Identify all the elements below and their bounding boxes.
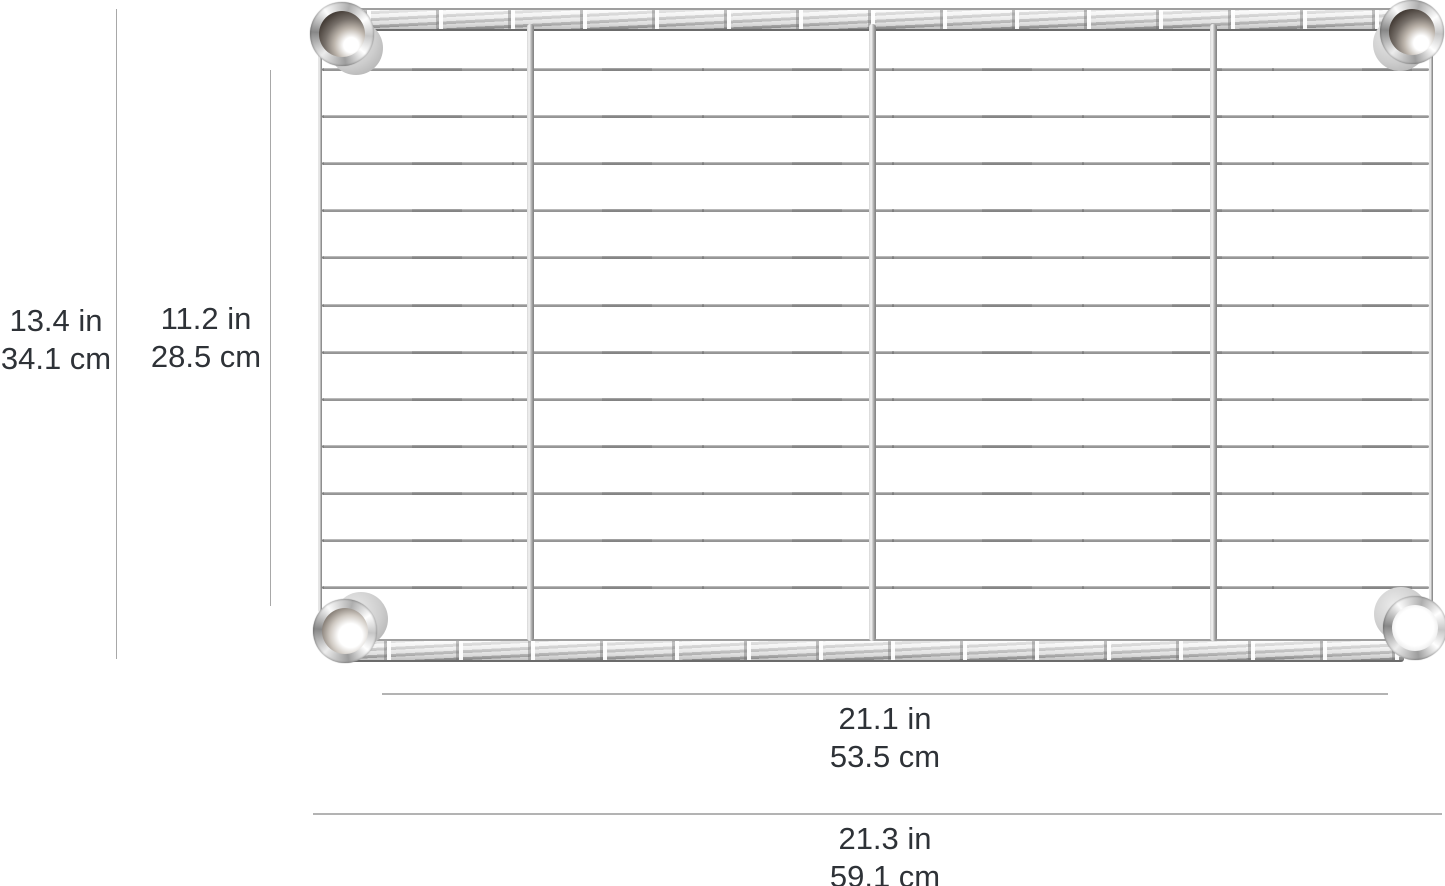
shelf-wire-row [322, 445, 1429, 448]
dimension-line-width-overall [313, 813, 1442, 815]
shelf-wire-row [322, 162, 1429, 165]
dimension-value-centimeters: 28.5 cm [146, 338, 266, 376]
dimension-label-depth-overall: 13.4 in 34.1 cm [0, 302, 116, 378]
collar-hole [319, 11, 365, 57]
dimension-value-inches: 21.1 in [825, 700, 945, 738]
collar-hole [1389, 9, 1435, 55]
shelf-wire-row [322, 398, 1429, 401]
dimension-value-inches: 21.3 in [825, 820, 945, 858]
shelf-wire-row [322, 539, 1429, 542]
collar-hole [322, 608, 368, 654]
post-collar-top-right [1380, 0, 1444, 64]
shelf-wire-row [322, 304, 1429, 307]
dimension-value-centimeters: 59.1 cm [825, 858, 945, 886]
wire-shelf-illustration [310, 2, 1445, 664]
shelf-wire-row [322, 351, 1429, 354]
product-dimension-diagram: 13.4 in 34.1 cm 11.2 in 28.5 cm 21.1 in … [0, 0, 1445, 886]
shelf-right-edge-wire [1429, 54, 1433, 602]
shelf-wire-row [322, 68, 1429, 71]
shelf-wire-row [322, 256, 1429, 259]
shelf-left-edge-wire [318, 52, 322, 612]
dimension-line-depth-inner [270, 70, 271, 606]
dimension-label-depth-inner: 11.2 in 28.5 cm [146, 300, 266, 376]
dimension-line-width-inner [382, 693, 1388, 695]
shelf-support-rail [869, 24, 876, 641]
dimension-value-inches: 11.2 in [146, 300, 266, 338]
shelf-wire-row [322, 115, 1429, 118]
shelf-support-rail [1210, 24, 1217, 641]
shelf-wire-row [322, 492, 1429, 495]
dimension-label-width-overall: 21.3 in 59.1 cm [825, 820, 945, 886]
dimension-value-centimeters: 53.5 cm [825, 738, 945, 776]
shelf-front-rail [350, 639, 1404, 662]
post-collar-top-left [310, 2, 374, 66]
dimension-label-width-inner: 21.1 in 53.5 cm [825, 700, 945, 776]
dimension-value-centimeters: 34.1 cm [0, 340, 116, 378]
dimension-value-inches: 13.4 in [0, 302, 116, 340]
shelf-back-rail [330, 8, 1426, 31]
shelf-support-rail [527, 24, 534, 641]
post-collar-bottom-left [313, 599, 377, 663]
post-collar-bottom-right [1383, 596, 1445, 660]
collar-hole [1392, 605, 1438, 651]
shelf-wire-row [322, 209, 1429, 212]
dimension-line-depth-overall [116, 9, 117, 659]
shelf-wire-row [322, 586, 1429, 589]
